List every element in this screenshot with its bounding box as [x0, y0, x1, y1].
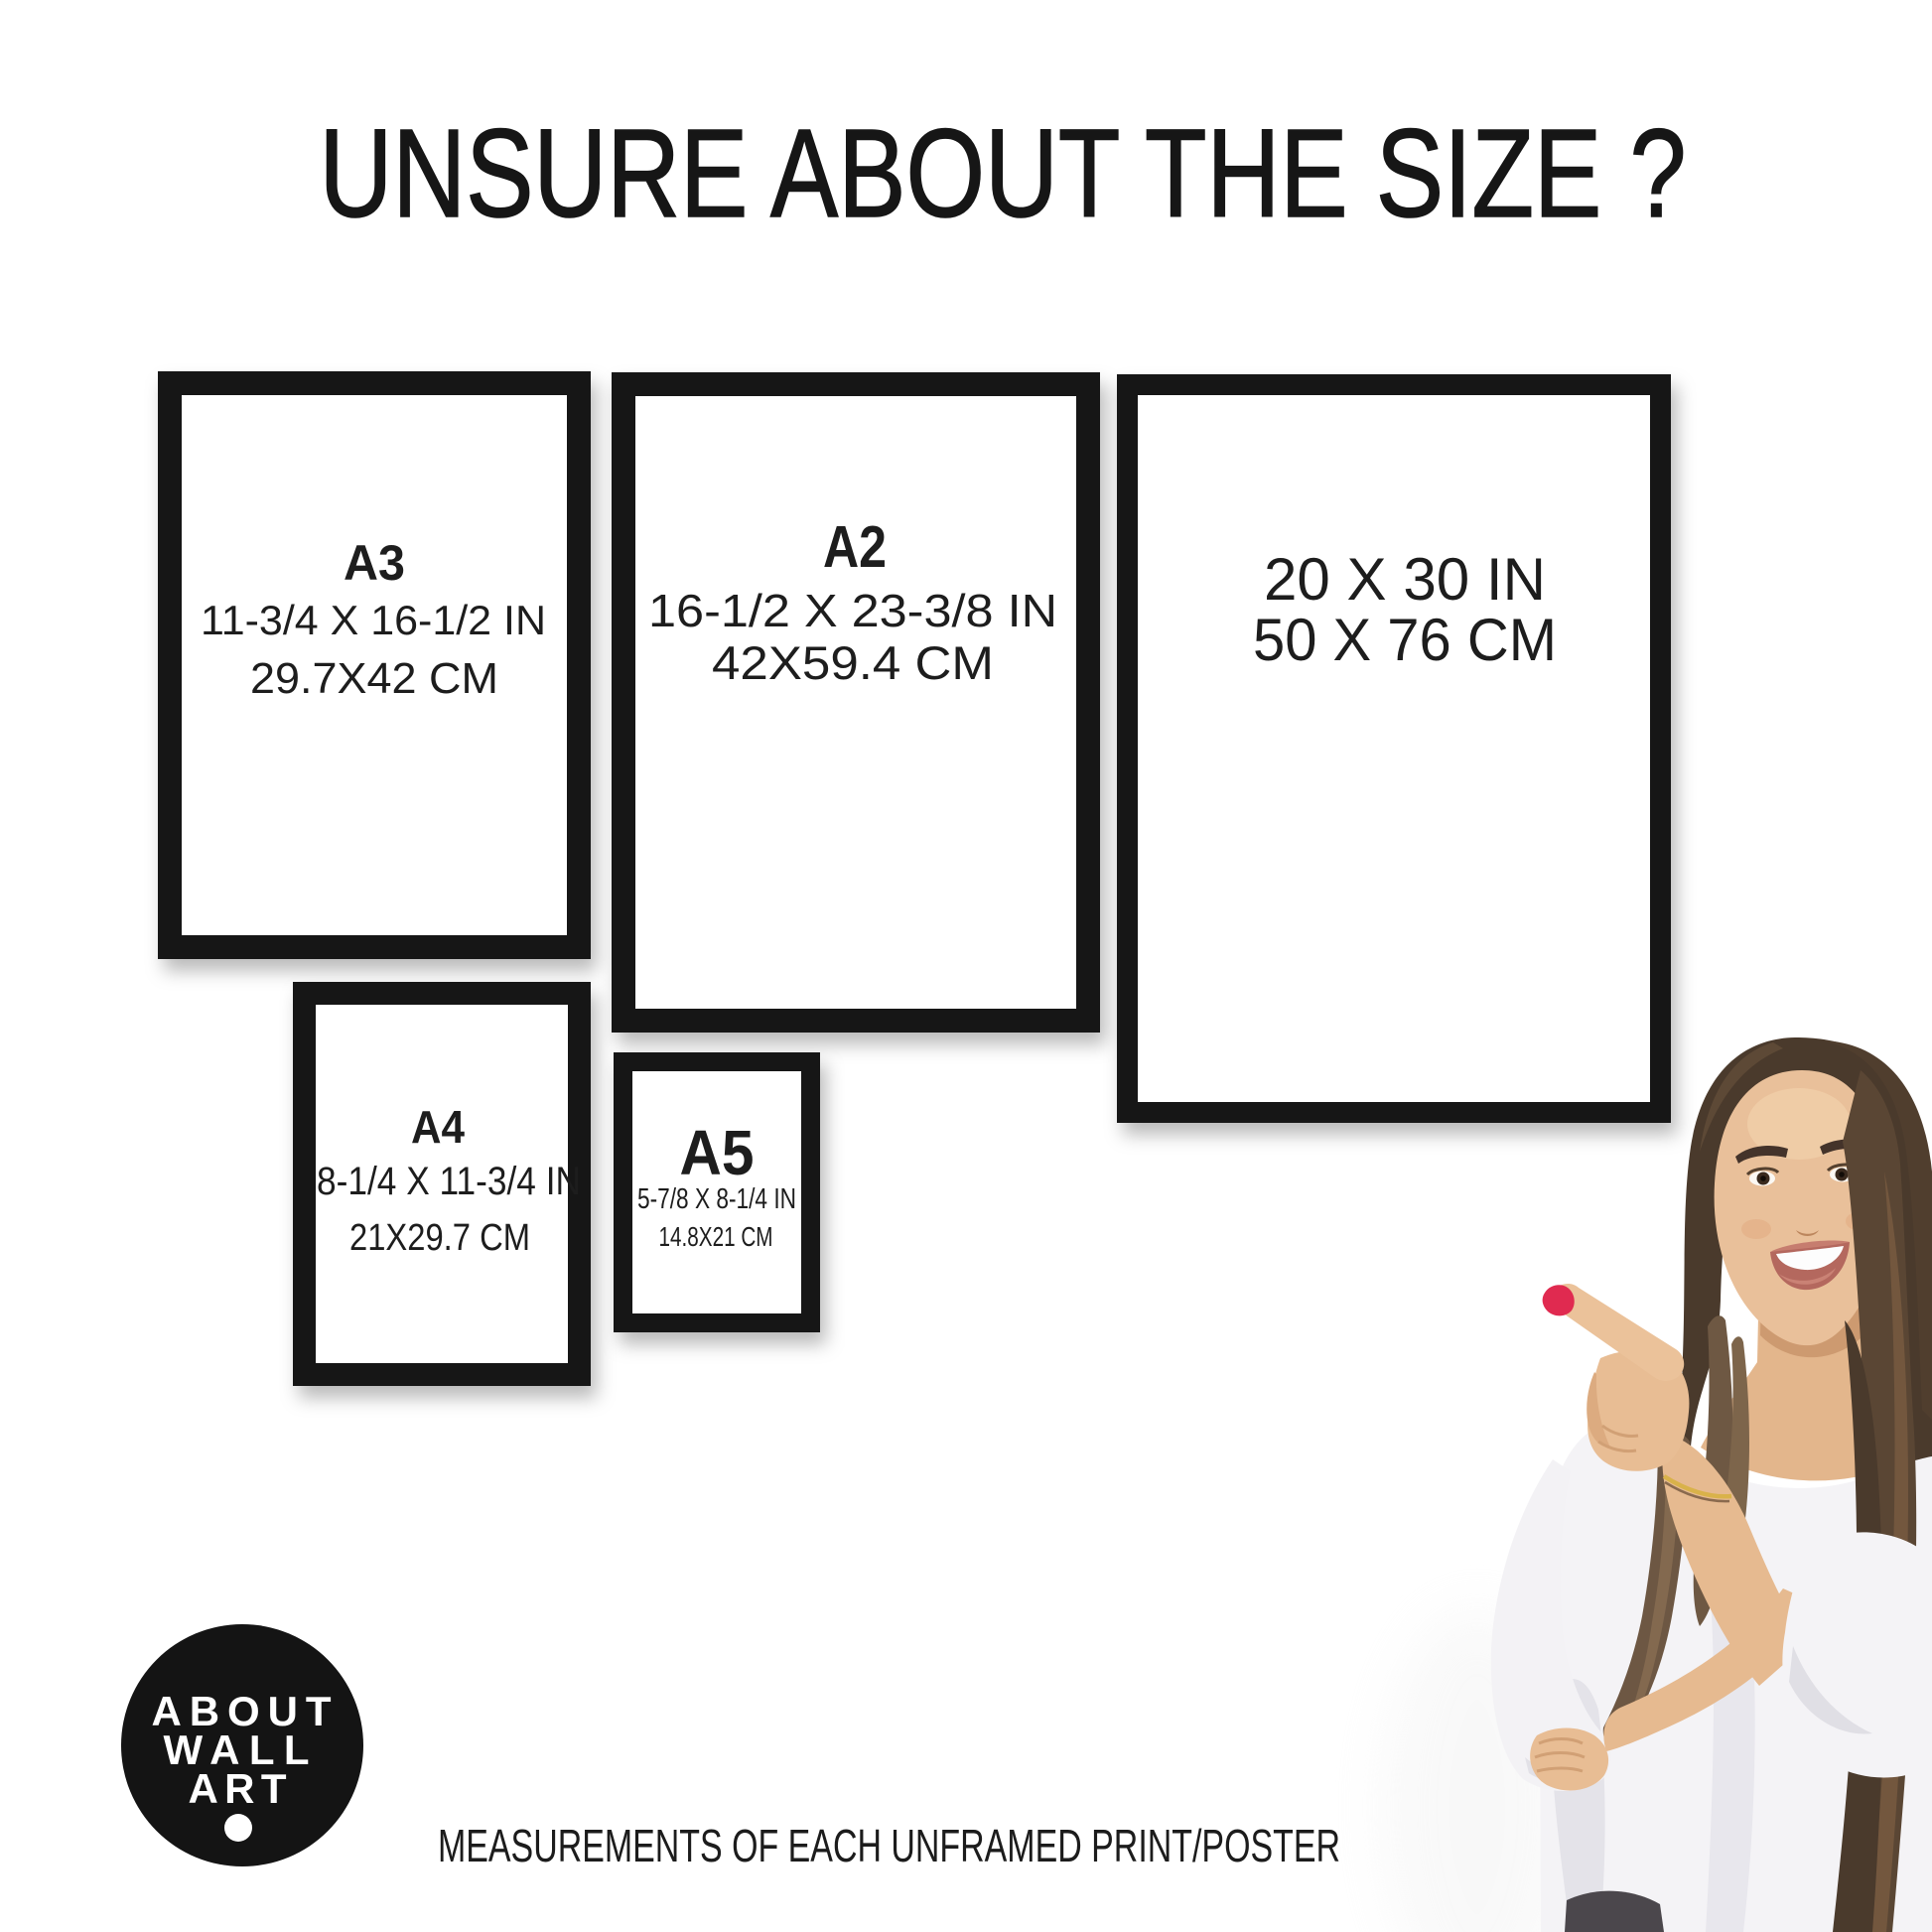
- svg-text:29.7X42 CM: 29.7X42 CM: [250, 654, 498, 703]
- svg-text:A4: A4: [411, 1101, 465, 1153]
- svg-text:A5: A5: [680, 1117, 755, 1188]
- svg-text:20 X 30 IN: 20 X 30 IN: [1264, 546, 1546, 613]
- svg-text:A2: A2: [823, 514, 887, 580]
- svg-text:16-1/2 X 23-3/8 IN: 16-1/2 X 23-3/8 IN: [648, 585, 1057, 636]
- svg-text:8-1/4 X 11-3/4 IN: 8-1/4 X 11-3/4 IN: [317, 1160, 581, 1203]
- svg-text:21X29.7 CM: 21X29.7 CM: [349, 1217, 530, 1259]
- svg-text:ART: ART: [189, 1765, 287, 1812]
- svg-text:A3: A3: [344, 535, 405, 591]
- svg-text:UNSURE ABOUT THE SIZE ?: UNSURE ABOUT THE SIZE ?: [320, 103, 1687, 243]
- svg-text:MEASUREMENTS OF EACH UNFRAMED: MEASUREMENTS OF EACH UNFRAMED PRINT/POST…: [438, 1820, 1340, 1871]
- svg-text:5-7/8 X 8-1/4 IN: 5-7/8 X 8-1/4 IN: [637, 1183, 796, 1215]
- svg-text:50 X 76 CM: 50 X 76 CM: [1253, 607, 1557, 673]
- svg-text:42X59.4 CM: 42X59.4 CM: [712, 636, 994, 689]
- svg-text:11-3/4 X 16-1/2 IN: 11-3/4 X 16-1/2 IN: [201, 597, 546, 643]
- svg-text:14.8X21 CM: 14.8X21 CM: [659, 1221, 773, 1252]
